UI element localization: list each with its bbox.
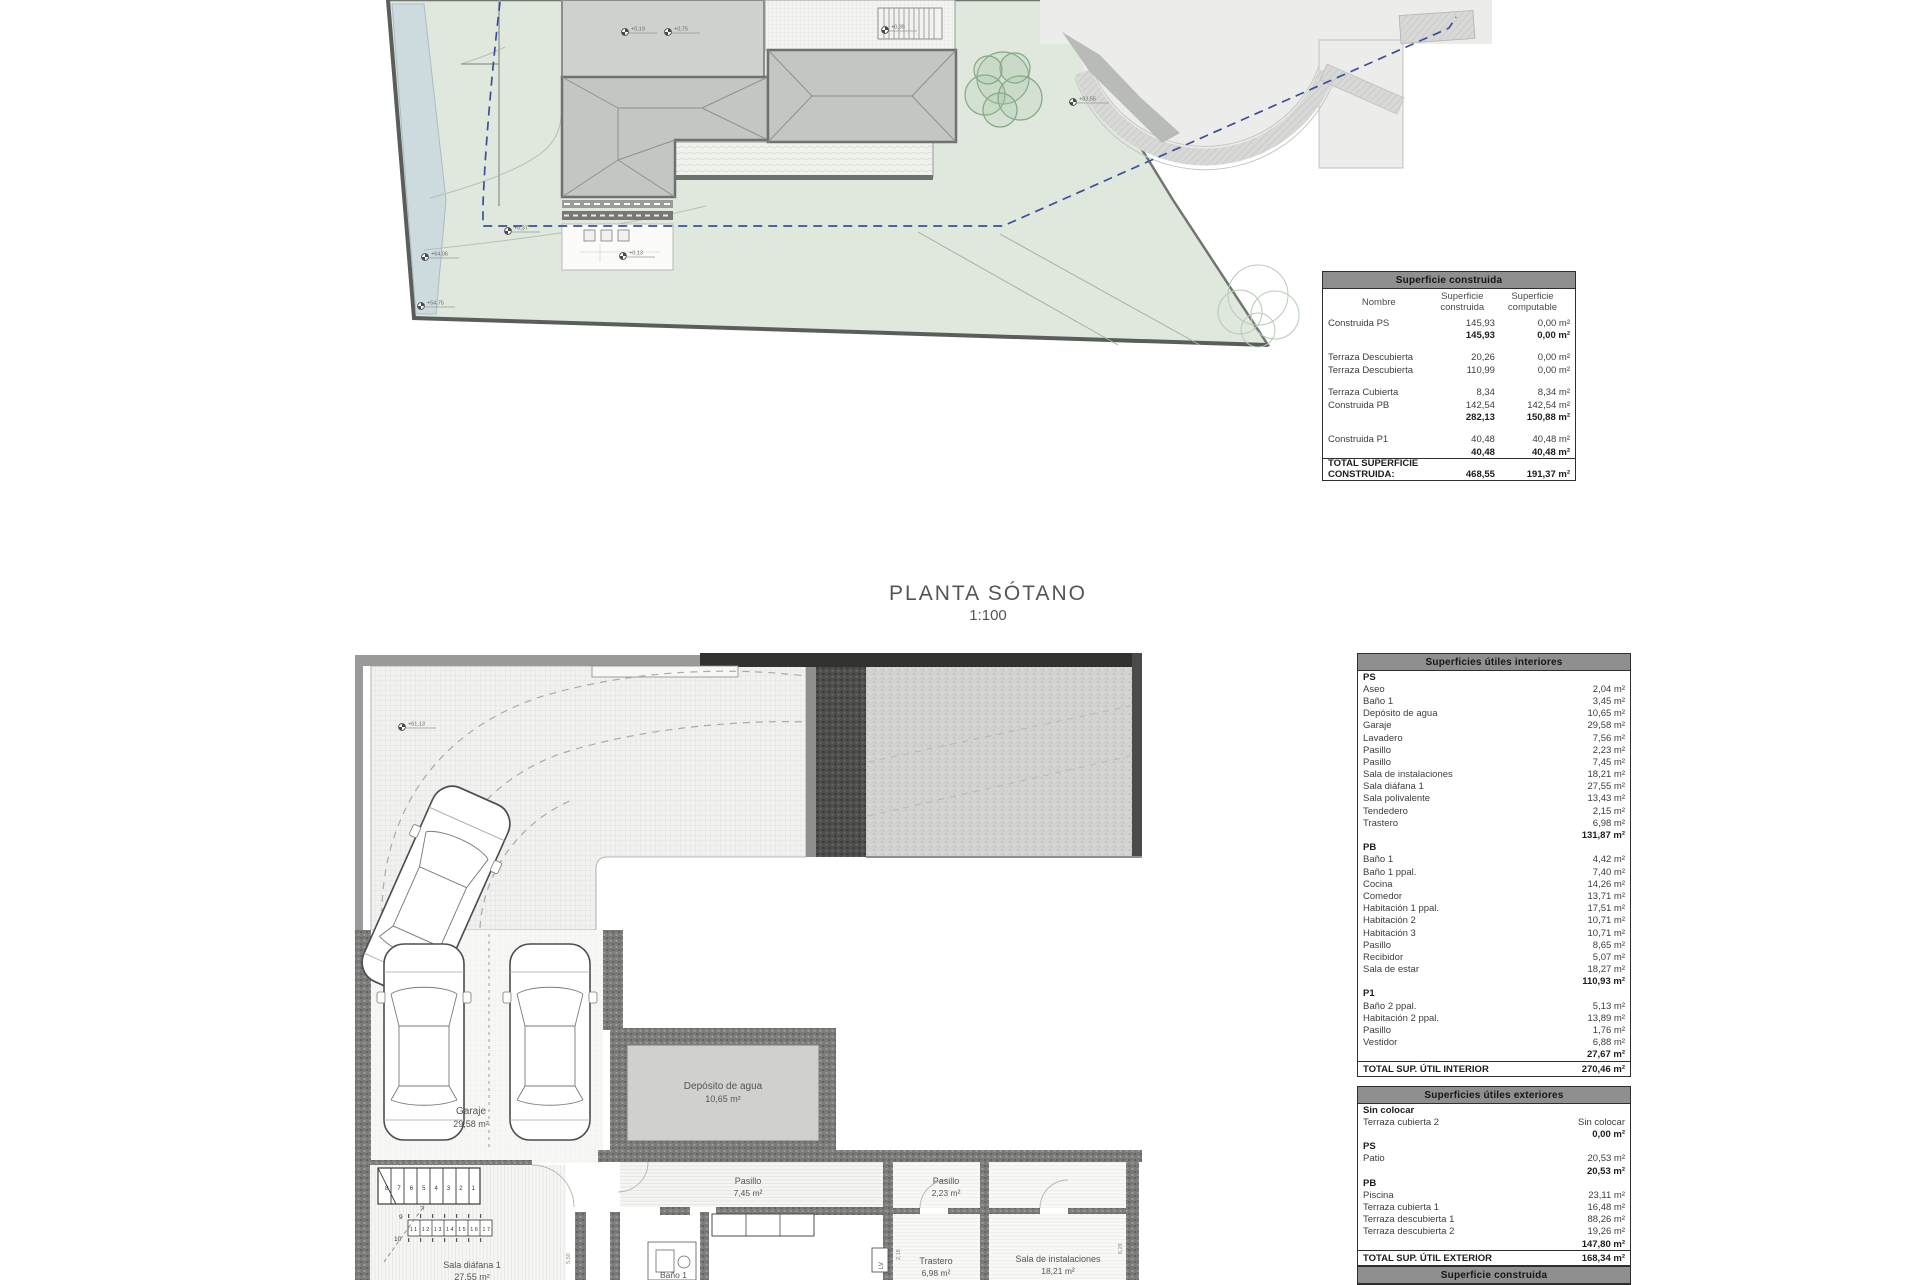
row-value: 2,23 m² <box>1525 746 1625 757</box>
table-row: Garaje29,58 m² <box>1358 720 1630 732</box>
row-value: 0,00 m² <box>1495 366 1570 377</box>
row-value: 88,26 m² <box>1525 1215 1625 1226</box>
table-row: Baño 14,42 m² <box>1358 854 1630 866</box>
row-value: 142,54 <box>1430 401 1495 412</box>
dim-label: 5,50 <box>566 1253 572 1264</box>
row-value: 10,65 m² <box>1525 709 1625 720</box>
row-label: Habitación 1 ppal. <box>1363 904 1525 915</box>
row-value: 40,48 <box>1430 448 1495 459</box>
row-label: Terraza Cubierta <box>1328 388 1430 399</box>
row-value: 20,53 m² <box>1525 1167 1625 1178</box>
row-label: Depósito de agua <box>1363 709 1525 720</box>
row-label: Sala polivalente <box>1363 794 1525 805</box>
row-label: Construida PB <box>1328 401 1430 412</box>
dim-label: 6,29 <box>1118 1243 1124 1254</box>
row-label: Habitación 2 ppal. <box>1363 1014 1525 1025</box>
row-value: 3,45 m² <box>1525 697 1625 708</box>
table-title: Superficie construida <box>1358 1267 1630 1284</box>
row-value: 18,21 m² <box>1525 770 1625 781</box>
row-value: 4,42 m² <box>1525 855 1625 866</box>
row-value: 1,76 m² <box>1525 1026 1625 1037</box>
room-area: 2,23 m² <box>932 1188 961 1198</box>
table-row: Baño 1 ppal.7,40 m² <box>1358 866 1630 878</box>
table-row: Terraza cubierta 116,48 m² <box>1358 1202 1630 1214</box>
room-area: 29,58 m² <box>453 1119 489 1129</box>
table-row: Construida PB142,54142,54 m² <box>1323 399 1575 411</box>
row-value: 20,53 m² <box>1525 1154 1625 1165</box>
table-row: Comedor13,71 m² <box>1358 890 1630 902</box>
row-label: Sala diáfana 1 <box>1363 782 1525 793</box>
paved-patio <box>562 224 673 270</box>
table-row: 27,67 m² <box>1358 1049 1630 1061</box>
row-label: Habitación 2 <box>1363 916 1525 927</box>
row-value: Superficie construida <box>1430 292 1495 313</box>
row-value: 131,87 m² <box>1525 831 1625 842</box>
row-label: Terraza cubierta 2 <box>1363 1118 1525 1129</box>
row-label: TOTAL SUP. ÚTIL INTERIOR <box>1363 1065 1525 1076</box>
row-value: 18,27 m² <box>1525 965 1625 976</box>
row-label: P1 <box>1363 989 1525 1000</box>
row-value: 7,56 m² <box>1525 734 1625 745</box>
car <box>503 944 597 1140</box>
row-value: 7,45 m² <box>1525 758 1625 769</box>
row-value: 6,98 m² <box>1525 819 1625 830</box>
table-superficies-utiles-interiores: Superficies útiles interiores PSAseo2,04… <box>1357 653 1631 1077</box>
table-body: PSAseo2,04 m²Baño 13,45 m²Depósito de ag… <box>1358 671 1630 1076</box>
row-label: PS <box>1363 673 1525 684</box>
table-row: Construida PS145,930,00 m² <box>1323 317 1575 329</box>
row-value: 20,26 <box>1430 353 1495 364</box>
stair-numbers: 8 7 6 5 4 3 2 1 <box>385 1186 476 1192</box>
table-row: 0,00 m² <box>1358 1128 1630 1140</box>
row-label: Terraza Descubierta <box>1328 366 1430 377</box>
table-row: Baño 13,45 m² <box>1358 695 1630 707</box>
table-row: 145,930,00 m² <box>1323 329 1575 341</box>
row-label: Vestidor <box>1363 1038 1525 1049</box>
row-value: 270,46 m² <box>1525 1065 1625 1076</box>
table-row: Habitación 210,71 m² <box>1358 915 1630 927</box>
room-label: Sala de instalaciones <box>1015 1254 1101 1264</box>
row-label: Baño 1 <box>1363 697 1525 708</box>
row-label: Terraza Descubierta <box>1328 353 1430 364</box>
table-section-row: Sin colocar <box>1358 1104 1630 1116</box>
row-label: Terraza descubierta 2 <box>1363 1227 1525 1238</box>
basement-plan: +61,13 9,50 Garaje 29,58 m² 3,41 Depósit… <box>340 640 1190 1280</box>
row-value: 23,11 m² <box>1525 1191 1625 1202</box>
row-value: 19,26 m² <box>1525 1227 1625 1238</box>
row-value: 40,48 <box>1430 435 1495 446</box>
table-row: Terraza Descubierta20,260,00 m² <box>1323 352 1575 364</box>
table-title: Superficie construida <box>1323 272 1575 289</box>
row-value: 282,13 <box>1430 413 1495 424</box>
table-section-row: PB <box>1358 842 1630 854</box>
row-label: Pasillo <box>1363 941 1525 952</box>
table-row: Sala polivalente13,43 m² <box>1358 793 1630 805</box>
dim-label: 7,30 <box>924 1156 934 1162</box>
benchmark-label: +83,55 <box>1079 97 1096 103</box>
table-row <box>1323 341 1575 352</box>
table-row: Terraza descubierta 188,26 m² <box>1358 1214 1630 1226</box>
table-title: Superficies útiles exteriores <box>1358 1087 1630 1104</box>
row-value: 6,88 m² <box>1525 1038 1625 1049</box>
room-area: 10,65 m² <box>705 1094 741 1104</box>
row-value: 10,71 m² <box>1525 916 1625 927</box>
benchmark-label: +0,13 <box>629 251 643 257</box>
row-label: Sin colocar <box>1363 1106 1525 1117</box>
table-total-row: TOTAL SUP. ÚTIL INTERIOR270,46 m² <box>1358 1061 1630 1076</box>
row-value: 27,67 m² <box>1525 1050 1625 1061</box>
table-superficie-construida-footer: Superficie construida <box>1357 1266 1631 1285</box>
table-row: Terraza cubierta 2Sin colocar <box>1358 1116 1630 1128</box>
table-row: Pasillo7,45 m² <box>1358 756 1630 768</box>
table-section-row: P1 <box>1358 988 1630 1000</box>
room-label: Garaje <box>456 1106 486 1117</box>
washer-label: LV <box>879 1262 885 1269</box>
row-value: 17,51 m² <box>1525 904 1625 915</box>
row-value: 0,00 m² <box>1495 331 1570 342</box>
table-row: 282,13150,88 m² <box>1323 411 1575 423</box>
table-superficie-construida: Superficie construida NombreSuperficie c… <box>1322 271 1576 481</box>
row-value: 40,48 m² <box>1495 435 1570 446</box>
table-row: 110,93 m² <box>1358 976 1630 988</box>
row-value: 14,26 m² <box>1525 880 1625 891</box>
table-row: Aseo2,04 m² <box>1358 683 1630 695</box>
room-area: 6,98 m² <box>922 1268 951 1278</box>
room-area: 7,45 m² <box>734 1188 763 1198</box>
plan-scale: 1:100 <box>868 607 1108 624</box>
row-label: Construida P1 <box>1328 435 1430 446</box>
table-title: Superficies útiles interiores <box>1358 654 1630 671</box>
table-body: Sin colocarTerraza cubierta 2Sin colocar… <box>1358 1104 1630 1265</box>
dim-label: 2,18 <box>896 1249 902 1260</box>
row-label: Recibidor <box>1363 953 1525 964</box>
pool-deck <box>675 142 933 177</box>
row-value: 110,93 m² <box>1525 977 1625 988</box>
row-value: 145,93 <box>1430 331 1495 342</box>
room-label: Depósito de agua <box>684 1081 763 1092</box>
row-value: 5,07 m² <box>1525 953 1625 964</box>
row-value: 142,54 m² <box>1495 401 1570 412</box>
row-label: TOTAL SUPERFICIE CONSTRUIDA: <box>1328 459 1430 480</box>
row-value: 147,80 m² <box>1525 1240 1625 1251</box>
top-wall <box>700 653 1142 667</box>
row-value: 0,00 m² <box>1525 1130 1625 1141</box>
row-label: Terraza cubierta 1 <box>1363 1203 1525 1214</box>
planter-band <box>816 664 866 857</box>
row-value: 150,88 m² <box>1495 413 1570 424</box>
table-section-row: PB <box>1358 1177 1630 1189</box>
table-row: Lavadero7,56 m² <box>1358 732 1630 744</box>
row-label: Trastero <box>1363 819 1525 830</box>
drawing-sheet: { "title": { "line1": "PLANTA SÓTANO", "… <box>0 0 1920 1280</box>
row-label: Baño 1 ppal. <box>1363 868 1525 879</box>
exterior-stairs <box>878 8 942 39</box>
room-label: Trastero <box>919 1256 952 1266</box>
upper-deck <box>562 0 764 77</box>
benchmark-label: +0,19 <box>631 27 645 33</box>
benchmark-label: +0,35 <box>891 25 905 31</box>
row-label: Baño 1 <box>1363 855 1525 866</box>
plan-title: PLANTA SÓTANO <box>868 582 1108 606</box>
deposito-room: Depósito de agua 10,65 m² <box>610 1028 836 1158</box>
row-value: 29,58 m² <box>1525 721 1625 732</box>
row-value: 13,43 m² <box>1525 794 1625 805</box>
stair-number: 9 <box>399 1214 403 1221</box>
row-label: PS <box>1363 1142 1525 1153</box>
table-row: 147,80 m² <box>1358 1238 1630 1250</box>
row-value: 16,48 m² <box>1525 1203 1625 1214</box>
row-value: 13,71 m² <box>1525 892 1625 903</box>
table-section-row: PS <box>1358 671 1630 683</box>
row-label: Tendedero <box>1363 807 1525 818</box>
table-row: 131,87 m² <box>1358 829 1630 841</box>
table-row: Cocina14,26 m² <box>1358 878 1630 890</box>
table-row: Terraza Cubierta8,348,34 m² <box>1323 387 1575 399</box>
row-label: Garaje <box>1363 721 1525 732</box>
table-row: Sala de estar18,27 m² <box>1358 964 1630 976</box>
row-value: 8,34 m² <box>1495 388 1570 399</box>
washer-box: LV <box>872 1248 888 1272</box>
row-value: 8,65 m² <box>1525 941 1625 952</box>
row-value: 2,15 m² <box>1525 807 1625 818</box>
row-value: 468,55 <box>1430 470 1495 481</box>
row-label: Pasillo <box>1363 746 1525 757</box>
wardrobe <box>712 1214 814 1236</box>
benchmark-label: +54,75 <box>427 301 444 307</box>
row-label: PB <box>1363 843 1525 854</box>
table-row: Sala de instalaciones18,21 m² <box>1358 769 1630 781</box>
benchmark-label: +0,75 <box>674 27 688 33</box>
room-label: Pasillo <box>933 1176 960 1186</box>
row-label: Sala de instalaciones <box>1363 770 1525 781</box>
table-row: 40,4840,48 m² <box>1323 446 1575 458</box>
table-row: 20,53 m² <box>1358 1165 1630 1177</box>
row-label: Comedor <box>1363 892 1525 903</box>
benchmark-label: +64,06 <box>431 252 448 258</box>
row-value: 110,99 <box>1430 366 1495 377</box>
table-row: Habitación 1 ppal.17,51 m² <box>1358 903 1630 915</box>
table-row: Patio20,53 m² <box>1358 1153 1630 1165</box>
row-value: 0,00 m² <box>1495 353 1570 364</box>
row-label: TOTAL SUP. ÚTIL EXTERIOR <box>1363 1254 1525 1265</box>
room-area: 27,55 m² <box>454 1272 490 1280</box>
row-value: 10,71 m² <box>1525 929 1625 940</box>
table-row: Depósito de agua10,65 m² <box>1358 708 1630 720</box>
row-label: Pasillo <box>1363 758 1525 769</box>
row-label: PB <box>1363 1179 1525 1190</box>
table-row: Terraza Descubierta110,990,00 m² <box>1323 364 1575 376</box>
row-value: 13,89 m² <box>1525 1014 1625 1025</box>
row-label: Nombre <box>1328 298 1430 309</box>
row-value: 2,04 m² <box>1525 685 1625 696</box>
row-value: 8,34 <box>1430 388 1495 399</box>
table-row: Construida P140,4840,48 m² <box>1323 434 1575 446</box>
row-label: Piscina <box>1363 1191 1525 1202</box>
room-label: Sala diáfana 1 <box>443 1260 501 1270</box>
room-label: Baño 1 <box>660 1270 687 1280</box>
table-total-row: TOTAL SUPERFICIE CONSTRUIDA:468,55191,37… <box>1323 458 1575 480</box>
row-label: Habitación 3 <box>1363 929 1525 940</box>
row-label: Construida PS <box>1328 319 1430 330</box>
table-row: Baño 2 ppal.5,13 m² <box>1358 1000 1630 1012</box>
table-row: Pasillo1,76 m² <box>1358 1024 1630 1036</box>
table-total-row: TOTAL SUP. ÚTIL EXTERIOR168,34 m² <box>1358 1250 1630 1265</box>
row-label: Sala de estar <box>1363 965 1525 976</box>
table-row: Terraza descubierta 219,26 m² <box>1358 1226 1630 1238</box>
room-label: Pasillo <box>735 1176 762 1186</box>
table-row: Pasillo2,23 m² <box>1358 744 1630 756</box>
row-value: 168,34 m² <box>1525 1254 1625 1265</box>
row-value: 7,40 m² <box>1525 868 1625 879</box>
exterior-ramp <box>866 664 1132 857</box>
row-value: 0,00 m² <box>1495 319 1570 330</box>
table-row: Pasillo8,65 m² <box>1358 939 1630 951</box>
table-row: Vestidor6,88 m² <box>1358 1037 1630 1049</box>
benchmark-label: +61,13 <box>408 722 425 728</box>
room-area: 18,21 m² <box>1041 1266 1075 1276</box>
row-label: Aseo <box>1363 685 1525 696</box>
table-row <box>1323 376 1575 387</box>
table-row: Sala diáfana 127,55 m² <box>1358 781 1630 793</box>
table-row: Tendedero2,15 m² <box>1358 805 1630 817</box>
table-row: NombreSuperficie construidaSuperficie co… <box>1323 289 1575 317</box>
row-value: 27,55 m² <box>1525 782 1625 793</box>
row-label: Terraza descubierta 1 <box>1363 1215 1525 1226</box>
row-label: Lavadero <box>1363 734 1525 745</box>
benchmark-label: +0,37 <box>514 226 528 232</box>
row-value: 145,93 <box>1430 319 1495 330</box>
row-label: Patio <box>1363 1154 1525 1165</box>
row-label: Pasillo <box>1363 1026 1525 1037</box>
table-row <box>1323 423 1575 434</box>
table-row: Habitación 2 ppal.13,89 m² <box>1358 1012 1630 1024</box>
table-superficies-utiles-exteriores: Superficies útiles exteriores Sin coloca… <box>1357 1086 1631 1266</box>
table-body: NombreSuperficie construidaSuperficie co… <box>1323 289 1575 480</box>
row-value: 40,48 m² <box>1495 448 1570 459</box>
table-section-row: PS <box>1358 1141 1630 1153</box>
table-row: Habitación 310,71 m² <box>1358 927 1630 939</box>
row-value: 5,13 m² <box>1525 1002 1625 1013</box>
row-value: Superficie computable <box>1495 292 1570 313</box>
plan-title-block: PLANTA SÓTANO 1:100 <box>868 582 1108 624</box>
row-label: Baño 2 ppal. <box>1363 1002 1525 1013</box>
row-label: Cocina <box>1363 880 1525 891</box>
row-value: Sin colocar <box>1525 1118 1625 1129</box>
table-row: Recibidor5,07 m² <box>1358 951 1630 963</box>
table-row: Piscina23,11 m² <box>1358 1189 1630 1201</box>
dim-label: 9,50 <box>809 779 815 790</box>
lower-rooms: 8 7 6 5 4 3 2 1 9 10 11 12 13 14 15 16 1… <box>370 1150 1142 1280</box>
table-row: Trastero6,98 m² <box>1358 817 1630 829</box>
row-value: 191,37 m² <box>1495 470 1570 481</box>
